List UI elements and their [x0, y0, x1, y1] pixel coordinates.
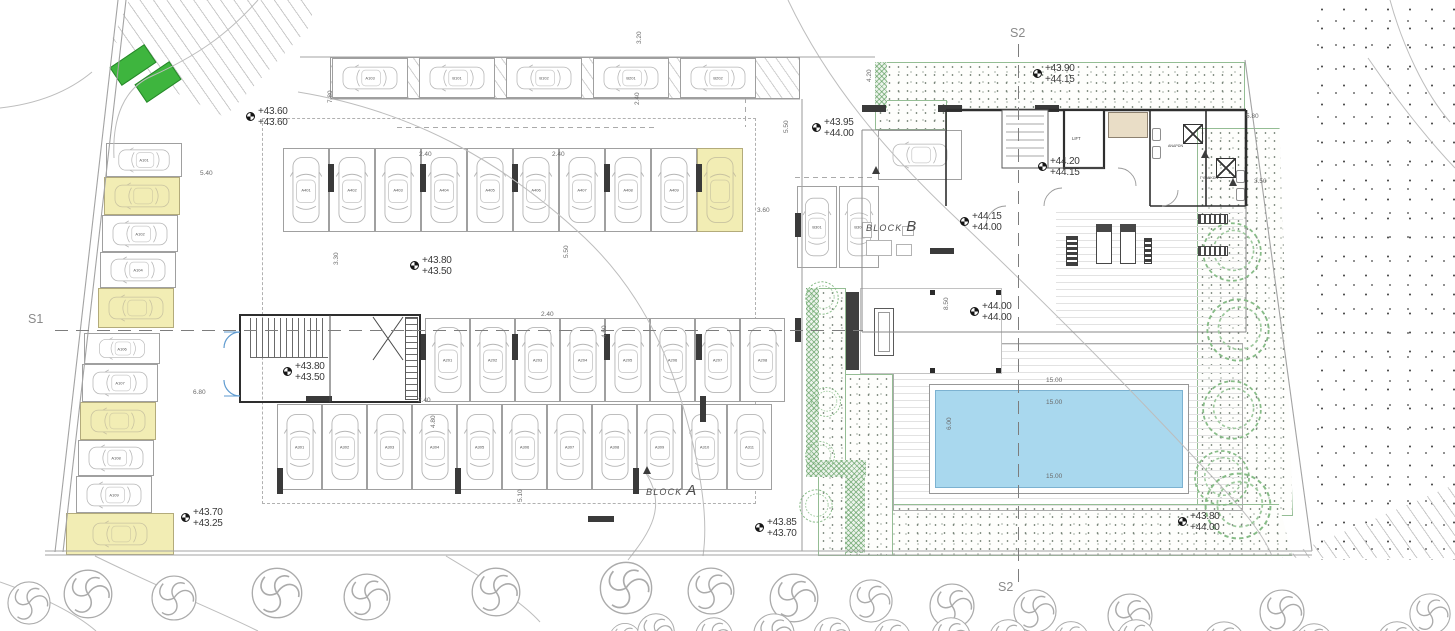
stall-label: A302	[323, 445, 366, 450]
stall-label: A208	[741, 358, 784, 363]
level-bottom: +44.15	[1045, 74, 1075, 85]
pergola-post	[996, 368, 1001, 373]
parking-stall: A408	[605, 148, 651, 232]
ramp-triangle	[1201, 150, 1209, 158]
outdoor-table	[874, 308, 894, 356]
pergola-post	[930, 290, 935, 295]
level-bottom: +43.60	[258, 117, 288, 128]
stall-label: A204	[561, 358, 604, 363]
parking-stall: A402	[329, 148, 375, 232]
level-marker: +43.80 +43.50	[410, 256, 452, 278]
level-bottom: +43.70	[767, 528, 797, 539]
shower-box	[1183, 124, 1203, 144]
tree-icon	[636, 612, 676, 631]
stall-label: A305	[458, 445, 501, 450]
dimension-label: 2.40	[552, 151, 565, 158]
level-marker: +44.20 +44.15	[1038, 157, 1080, 179]
wall-pier	[512, 164, 518, 192]
pergola-post	[930, 368, 935, 373]
lobby-furniture	[896, 244, 912, 256]
tree-icon	[250, 566, 304, 620]
kitchenette	[1108, 112, 1148, 138]
trellis-band	[875, 62, 887, 111]
parking-stall: A104	[100, 252, 176, 288]
wall-pier	[633, 468, 639, 494]
stall-label: A401	[284, 188, 328, 193]
parking-stall: A103	[332, 58, 408, 98]
parking-stall: A409	[651, 148, 697, 232]
shrub-icon	[804, 440, 836, 472]
stall-label: B102	[507, 76, 581, 81]
stall-label: A207	[696, 358, 739, 363]
stall-label: A101	[107, 158, 181, 163]
stall-label: B301	[798, 225, 836, 230]
level-bottom: +44.00	[972, 222, 1002, 233]
stall-label: A407	[560, 188, 604, 193]
wall-pier	[938, 105, 962, 112]
dimension-label: 15.00	[1046, 399, 1062, 406]
level-top: +43.95	[824, 117, 854, 128]
level-bottom: +44.00	[1190, 522, 1220, 533]
tree-icon	[62, 568, 114, 620]
wall-pier	[1035, 105, 1059, 112]
dashed-segment	[795, 177, 872, 178]
tree-icon	[872, 618, 912, 631]
deciduous-tree	[470, 566, 522, 623]
shrub-tree	[1200, 378, 1264, 447]
tree-icon	[6, 580, 52, 626]
stall-label: A106	[85, 346, 159, 351]
section-line-s2	[1018, 44, 1019, 588]
shrub-icon	[1200, 378, 1264, 442]
car-icon	[702, 152, 738, 228]
stall-label: A403	[376, 188, 420, 193]
parking-stall: B201	[593, 58, 669, 98]
stall-label: A303	[368, 445, 411, 450]
tree-icon	[930, 616, 972, 631]
parking-stall: A302	[322, 404, 367, 490]
car-icon	[84, 406, 152, 436]
benchmark-icon	[812, 123, 821, 132]
shrub-tree	[798, 488, 834, 529]
block-label: BLOCK A	[646, 482, 696, 499]
dimension-label: 5.40	[200, 170, 213, 177]
shrub-icon	[798, 488, 834, 524]
parking-stall: A303	[367, 404, 412, 490]
tree-icon	[1202, 620, 1246, 631]
wc-fixture	[1236, 170, 1245, 183]
parking-stall: A401	[283, 148, 329, 232]
site-plan: A103 B101 B102 B201 B202 A401 A402 A403 …	[0, 0, 1455, 631]
stall-label: A108	[79, 456, 153, 461]
benchmark-icon	[410, 261, 419, 270]
level-values: +43.90 +44.15	[1045, 64, 1075, 86]
parking-stall-reserved	[66, 513, 174, 555]
level-top: +43.90	[1045, 63, 1075, 74]
level-marker: +44.00 +44.00	[970, 302, 1012, 324]
dimension-label: 7.80	[327, 90, 334, 103]
stall-label: A203	[516, 358, 559, 363]
deciduous-tree	[1052, 620, 1090, 631]
parking-stall: A404	[421, 148, 467, 232]
block-word: BLOCK	[866, 223, 903, 233]
wall-pier	[306, 396, 332, 403]
deciduous-tree	[636, 612, 676, 631]
dimension-label: 5.10	[517, 489, 524, 502]
parking-stall: A311	[727, 404, 772, 490]
stall-label: A206	[651, 358, 694, 363]
parking-stall: A102	[102, 215, 178, 252]
benchmark-icon	[1178, 517, 1187, 526]
dimension-label: 2.40	[541, 311, 554, 318]
parking-stall: A301	[277, 404, 322, 490]
wall-pier	[930, 248, 954, 254]
parking-stall: A403	[375, 148, 421, 232]
benchmark-icon	[1033, 69, 1042, 78]
level-top: +43.80	[1190, 511, 1220, 522]
shower-box	[1216, 158, 1236, 178]
parking-stall: A108	[78, 440, 154, 476]
shrub-tree	[804, 280, 840, 321]
parking-stall: B101	[419, 58, 495, 98]
car-icon	[108, 181, 176, 211]
level-values: +44.20 +44.15	[1050, 157, 1080, 179]
stall-label: A406	[514, 188, 558, 193]
wall-pier	[604, 164, 610, 192]
treadmill	[1120, 224, 1136, 264]
stall-label: A306	[503, 445, 546, 450]
dimension-label: 5.50	[783, 120, 790, 133]
wall-pier	[328, 164, 334, 192]
tree-icon	[598, 560, 654, 616]
stall-label: B201	[594, 76, 668, 81]
wall-pier	[277, 468, 283, 494]
level-values: +43.80 +44.00	[1190, 512, 1220, 534]
shrub-icon	[804, 280, 840, 316]
deciduous-tree	[1294, 622, 1334, 631]
level-values: +43.60 +43.60	[258, 107, 288, 129]
shrub-tree	[804, 440, 836, 477]
level-top: +44.15	[972, 211, 1002, 222]
dimension-label: 3.20	[636, 31, 643, 44]
level-top: +44.00	[982, 301, 1012, 312]
wall-pier	[588, 516, 614, 522]
ramp-triangle	[643, 466, 651, 474]
stall-label: A102	[103, 231, 177, 236]
dimension-label: 5.50	[563, 245, 570, 258]
dimension-label: 4.80	[430, 415, 437, 428]
deciduous-tree	[150, 574, 198, 627]
wall-pier	[862, 105, 886, 112]
stall-label: A301	[278, 445, 321, 450]
deciduous-tree	[1202, 620, 1246, 631]
dimension-label: 3.30	[333, 252, 340, 265]
parking-stall: A107	[82, 364, 158, 402]
parking-stall: A109	[76, 476, 152, 513]
level-marker: +43.80 +44.00	[1178, 512, 1220, 534]
level-top: +43.80	[422, 255, 452, 266]
treadmill	[1096, 224, 1112, 264]
parking-stall-reserved	[697, 148, 743, 232]
wall-pier	[700, 396, 706, 422]
level-top: +43.80	[295, 361, 325, 372]
level-marker: +43.70 +43.25	[181, 508, 223, 530]
trellis-band	[845, 477, 865, 553]
dimension-label: 3.60	[757, 207, 770, 214]
parking-stall: A407	[559, 148, 605, 232]
level-bottom: +43.25	[193, 518, 223, 529]
benchmark-icon	[283, 367, 292, 376]
deciduous-tree	[1116, 618, 1156, 631]
section-label: S2	[998, 580, 1013, 594]
parking-stall: A306	[502, 404, 547, 490]
ramp-triangle	[872, 166, 880, 174]
dimension-label: 8.50	[943, 297, 950, 310]
gym-bench	[1198, 246, 1228, 256]
deciduous-tree	[752, 612, 796, 631]
section-label: S2	[1010, 26, 1025, 40]
weight-rack	[1066, 236, 1078, 266]
stall-label: B101	[420, 76, 494, 81]
level-marker: +43.60 +43.60	[246, 107, 288, 129]
wall-pier	[455, 468, 461, 494]
shrub-tree	[1202, 470, 1274, 547]
deciduous-tree	[694, 616, 734, 631]
stall-label: A402	[330, 188, 374, 193]
car-icon	[102, 293, 170, 323]
benchmark-icon	[246, 112, 255, 121]
stall-label: A104	[101, 268, 175, 273]
dimension-label: 6.00	[946, 417, 953, 430]
pergola-post	[996, 290, 1001, 295]
benchmark-icon	[1038, 162, 1047, 171]
benchmark-icon	[960, 217, 969, 226]
stair-treads	[250, 318, 328, 358]
tree-icon	[694, 616, 734, 631]
parking-stall: A101	[106, 143, 182, 177]
tree-icon	[812, 616, 852, 631]
wc-fixture	[1152, 128, 1161, 141]
dashed-segment	[745, 98, 746, 127]
tree-icon	[1376, 620, 1418, 631]
lobby-furniture	[866, 240, 892, 256]
deciduous-tree	[6, 580, 52, 631]
deciduous-tree	[812, 616, 852, 631]
tree-icon	[1052, 620, 1090, 631]
parking-stall-reserved	[98, 288, 174, 328]
parking-stall: A406	[513, 148, 559, 232]
stall-label: A308	[593, 445, 636, 450]
stall-label: B202	[681, 76, 755, 81]
deciduous-tree	[1376, 620, 1418, 631]
dimension-label: 5.80	[1246, 113, 1259, 120]
block-word: BLOCK	[646, 487, 683, 497]
deciduous-tree	[988, 618, 1028, 631]
gym-bench	[1198, 214, 1228, 224]
stall-label: A109	[77, 492, 151, 497]
dimension-label: 15.00	[1046, 377, 1062, 384]
tree-icon	[470, 566, 522, 618]
level-bottom: +44.00	[824, 128, 854, 139]
dimension-label: 2.40	[418, 397, 431, 404]
parking-stall: A106	[84, 333, 160, 364]
level-values: +44.15 +44.00	[972, 212, 1002, 234]
tree-icon	[1116, 618, 1156, 631]
level-top: +43.60	[258, 106, 288, 117]
stall-label: A409	[652, 188, 696, 193]
stall-label: A307	[548, 445, 591, 450]
level-marker: +43.85 +43.70	[755, 518, 797, 540]
stall-label: A202	[471, 358, 514, 363]
section-line-s1	[55, 330, 863, 331]
parking-stall: B301	[797, 186, 837, 268]
wall-pier	[512, 334, 518, 360]
deciduous-tree	[872, 618, 912, 631]
tree-icon	[686, 566, 736, 616]
parking-stall-reserved	[104, 177, 180, 215]
dimension-label: 2.40	[634, 92, 641, 105]
tree-icon	[988, 618, 1028, 631]
dimension-label: 2.40	[419, 151, 432, 158]
dimension-label: 4.60	[601, 325, 608, 338]
stall-label: A107	[83, 381, 157, 386]
deciduous-tree	[62, 568, 114, 625]
car-icon	[84, 519, 156, 549]
level-values: +43.95 +44.00	[824, 118, 854, 140]
parking-stall: A307	[547, 404, 592, 490]
dimension-label: 6.80	[193, 389, 206, 396]
dimension-label: 3.50	[1254, 178, 1267, 185]
wall-pier	[795, 213, 801, 237]
stall-label: A103	[333, 76, 407, 81]
benchmark-icon	[970, 307, 979, 316]
level-bottom: +43.50	[422, 266, 452, 277]
wc-fixture	[1152, 146, 1161, 159]
block-letter: A	[686, 482, 696, 499]
parking-stall: B202	[680, 58, 756, 98]
level-top: +43.70	[193, 507, 223, 518]
section-label: S1	[28, 312, 43, 326]
tree-icon	[752, 612, 796, 631]
parking-stall: A305	[457, 404, 502, 490]
dimension-label: 4.20	[866, 69, 873, 82]
deciduous-tree	[250, 566, 304, 625]
dimension-label: 15.00	[1046, 473, 1062, 480]
level-bottom: +43.50	[295, 372, 325, 383]
room-label: LIFT	[1072, 136, 1081, 141]
tree-icon	[150, 574, 198, 622]
stall-label: A404	[422, 188, 466, 193]
block-label: BLOCK B	[866, 218, 916, 235]
ramp-triangle	[1229, 178, 1237, 186]
level-marker: +43.90 +44.15	[1033, 64, 1075, 86]
deciduous-tree	[342, 572, 392, 627]
level-bottom: +44.00	[982, 312, 1012, 323]
stall-label: A408	[606, 188, 650, 193]
deciduous-tree	[686, 566, 736, 621]
shrub-tree	[1204, 296, 1272, 369]
parking-stall: A309	[637, 404, 682, 490]
stall-label: A311	[728, 445, 771, 450]
block-letter: B	[906, 218, 916, 235]
level-marker: +44.15 +44.00	[960, 212, 1002, 234]
stall-label: A201	[426, 358, 469, 363]
parking-stall: A308	[592, 404, 637, 490]
benchmark-icon	[181, 513, 190, 522]
stall-label: A304	[413, 445, 456, 450]
wall-pier	[420, 334, 426, 360]
wall-pier	[696, 334, 702, 360]
level-top: +44.20	[1050, 156, 1080, 167]
level-values: +43.80 +43.50	[295, 362, 325, 384]
wc-fixture	[1236, 188, 1245, 201]
car-icon	[884, 140, 956, 170]
tree-icon	[1294, 622, 1334, 631]
deciduous-tree	[930, 616, 972, 631]
stall-label: A205	[606, 358, 649, 363]
level-values: +44.00 +44.00	[982, 302, 1012, 324]
wall-pier	[420, 164, 426, 192]
level-values: +43.80 +43.50	[422, 256, 452, 278]
parking-stall: A405	[467, 148, 513, 232]
room-label: ΑΝΔΡΩΝ	[1168, 144, 1183, 148]
stall-label: A405	[468, 188, 512, 193]
wall-pier	[696, 164, 702, 192]
shrub-icon	[810, 386, 842, 418]
weight-rack	[1144, 238, 1152, 264]
stall-label: A309	[638, 445, 681, 450]
parking-stall-reserved	[80, 402, 156, 440]
tree-icon	[342, 572, 392, 622]
level-marker: +43.80 +43.50	[283, 362, 325, 384]
parking-stall: B102	[506, 58, 582, 98]
dashed-segment	[397, 127, 655, 128]
room-label: ΓΥΝΑΙΚΩΝ	[1200, 176, 1218, 180]
level-values: +43.85 +43.70	[767, 518, 797, 540]
benchmark-icon	[755, 523, 764, 532]
parking-stall	[878, 130, 962, 180]
shrub-tree	[810, 386, 842, 423]
level-marker: +43.95 +44.00	[812, 118, 854, 140]
stall-label: A310	[683, 445, 726, 450]
level-values: +43.70 +43.25	[193, 508, 223, 530]
level-bottom: +44.15	[1050, 167, 1080, 178]
shrub-icon	[1204, 296, 1272, 364]
level-top: +43.85	[767, 517, 797, 528]
